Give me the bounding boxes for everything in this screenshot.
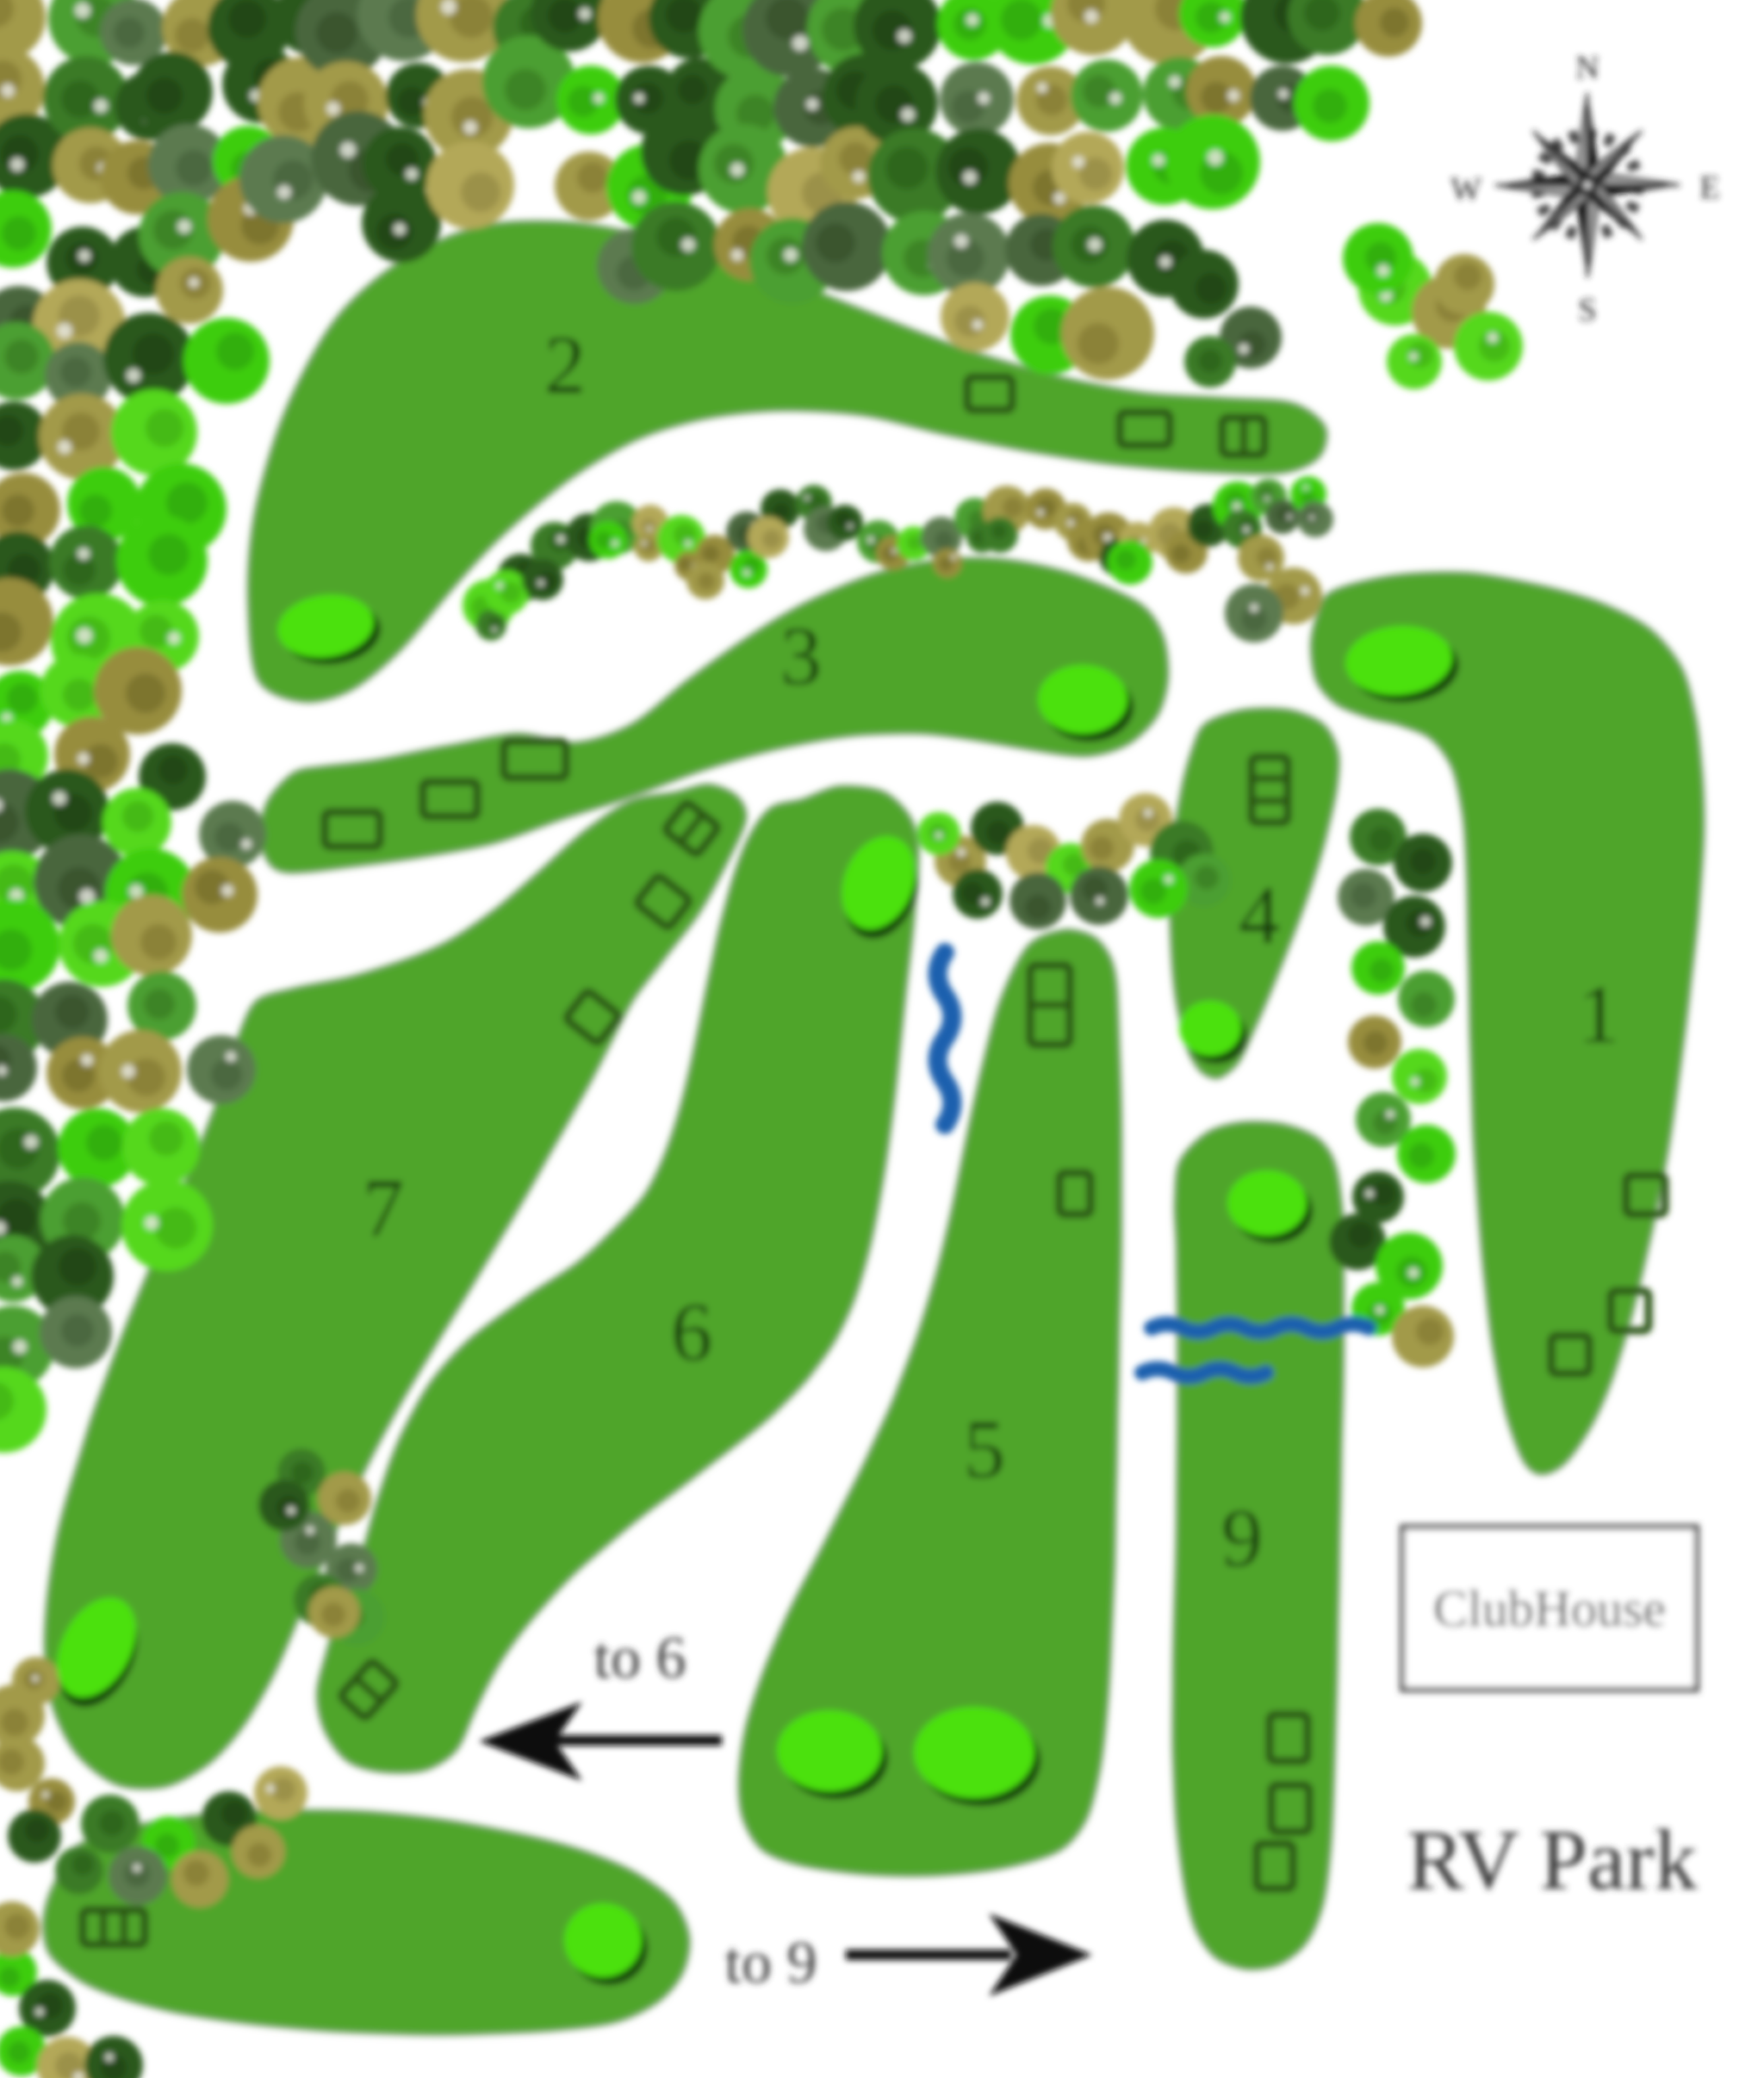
- svg-text:RV Park: RV Park: [1407, 1812, 1697, 1907]
- svg-text:5: 5: [964, 1403, 1005, 1495]
- svg-text:W: W: [1450, 171, 1481, 208]
- svg-text:S: S: [1578, 292, 1596, 328]
- svg-text:3: 3: [780, 610, 822, 702]
- svg-text:to 6: to 6: [594, 1625, 686, 1691]
- svg-text:4: 4: [1239, 869, 1280, 961]
- svg-text:6: 6: [671, 1286, 712, 1378]
- svg-text:9: 9: [1221, 1492, 1263, 1584]
- svg-text:2: 2: [544, 319, 586, 411]
- svg-text:1: 1: [1578, 968, 1619, 1060]
- svg-text:to 9: to 9: [725, 1930, 817, 1996]
- svg-text:N: N: [1575, 50, 1599, 86]
- svg-text:7: 7: [363, 1162, 404, 1254]
- svg-text:E: E: [1699, 170, 1719, 206]
- svg-text:ClubHouse: ClubHouse: [1433, 1580, 1666, 1637]
